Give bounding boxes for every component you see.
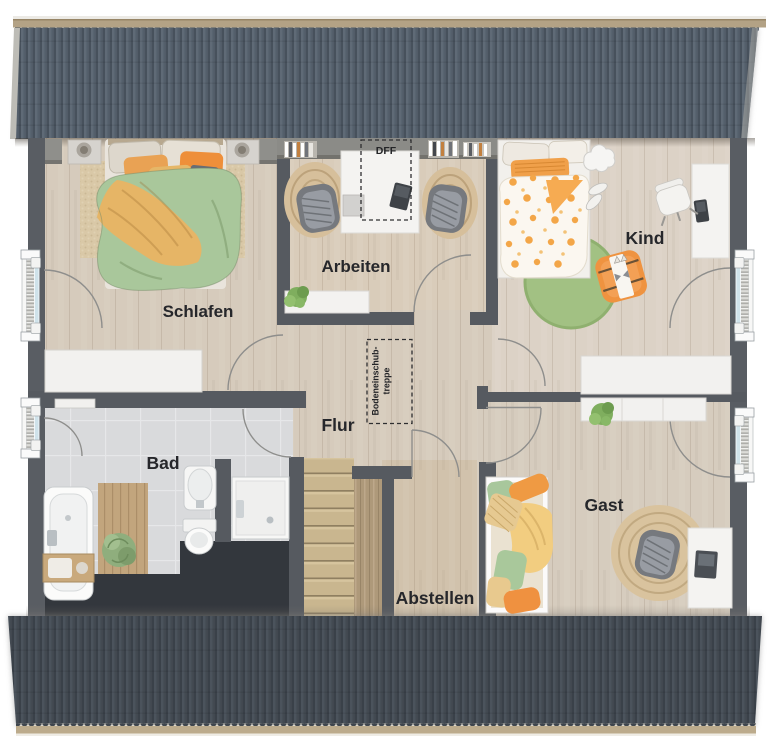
svg-text:Flur: Flur: [321, 415, 354, 435]
svg-text:Arbeiten: Arbeiten: [322, 257, 391, 276]
svg-text:Schlafen: Schlafen: [163, 302, 234, 321]
svg-text:Bodeneinschub-: Bodeneinschub-: [371, 346, 381, 415]
svg-text:Gast: Gast: [585, 495, 624, 515]
svg-text:Bad: Bad: [146, 453, 179, 473]
svg-text:treppe: treppe: [382, 367, 392, 394]
svg-text:Abstellen: Abstellen: [396, 588, 475, 608]
svg-text:DFF: DFF: [376, 145, 397, 157]
svg-text:Kind: Kind: [626, 228, 665, 248]
